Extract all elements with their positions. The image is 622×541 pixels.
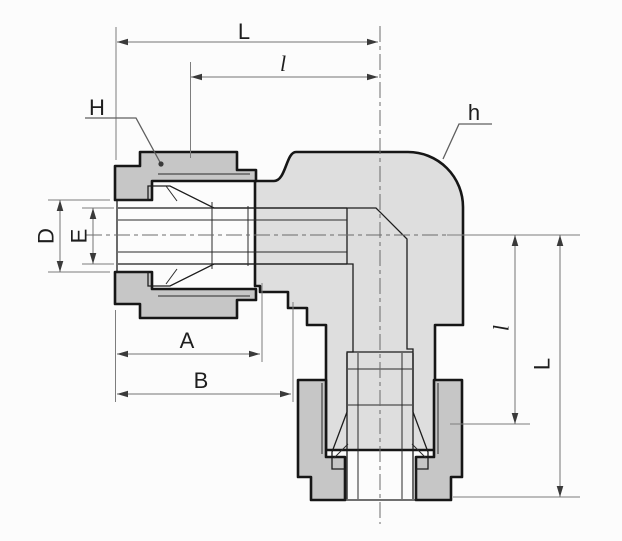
drawing-canvas: L l H h D E A B l L	[0, 0, 622, 541]
label-callout-H: H	[89, 95, 105, 120]
label-dim-L-top: L	[238, 19, 250, 44]
leader-dot-H	[158, 161, 163, 166]
label-dim-l-top: l	[280, 51, 286, 76]
label-callout-h: h	[468, 100, 480, 125]
label-dim-L-right: L	[530, 358, 555, 370]
label-dim-A: A	[180, 328, 195, 353]
label-dim-B: B	[194, 368, 209, 393]
label-dim-E: E	[67, 229, 92, 244]
label-dim-D: D	[34, 228, 59, 244]
elbow-fitting-technical-drawing: L l H h D E A B l L	[0, 0, 622, 541]
label-dim-l-right: l	[489, 325, 514, 331]
